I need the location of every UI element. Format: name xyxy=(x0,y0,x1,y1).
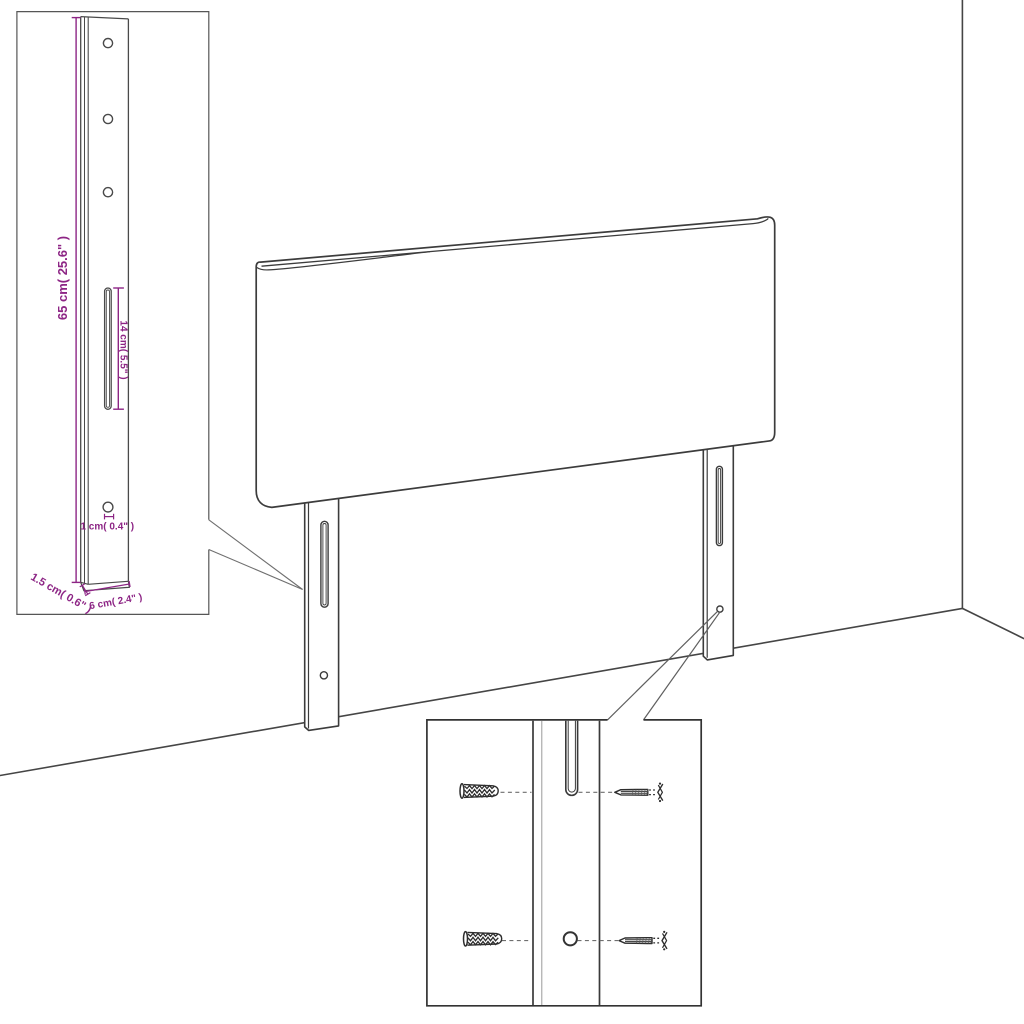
svg-text:65 cm( 25.6" ): 65 cm( 25.6" ) xyxy=(55,236,70,320)
svg-text:1 cm( 0.4" ): 1 cm( 0.4" ) xyxy=(80,522,134,533)
svg-text:14 cm( 5.5" ): 14 cm( 5.5" ) xyxy=(118,320,129,379)
